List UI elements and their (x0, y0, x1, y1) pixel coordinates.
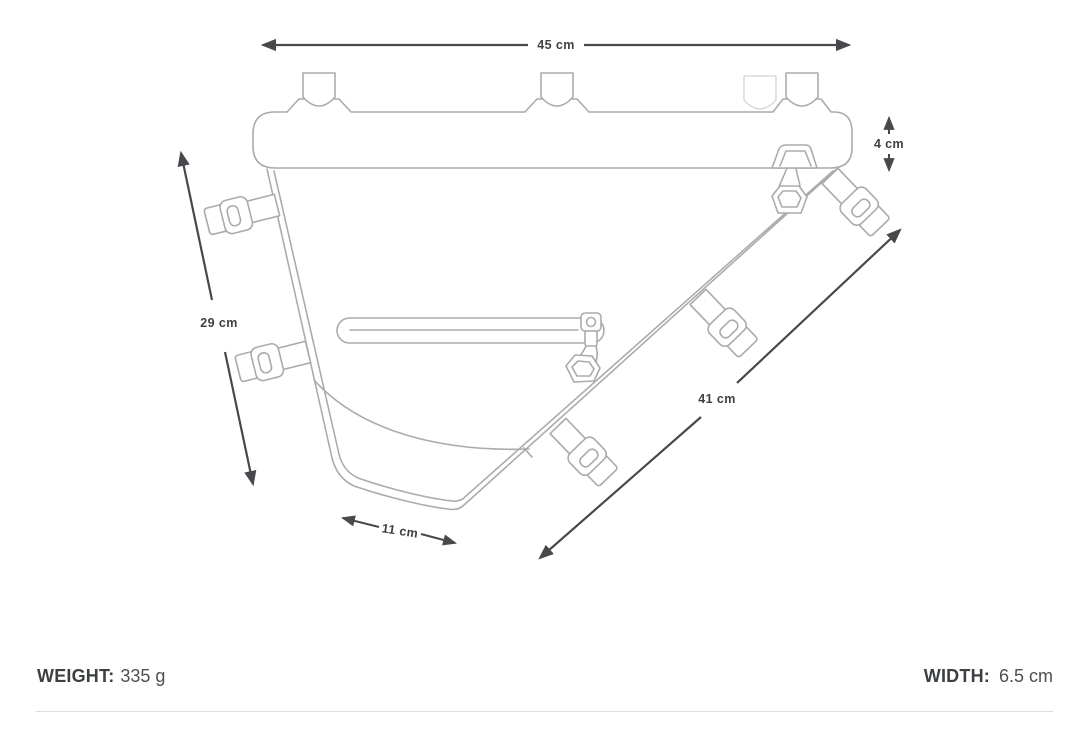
dim-bottom-arrow-right (421, 534, 455, 543)
diagonal-strap-buckle-bottom (546, 414, 620, 489)
zipper (337, 313, 604, 382)
weight-spec: WEIGHT:335 g (37, 666, 165, 687)
weight-value: 335 g (120, 666, 165, 686)
dim-left-label: 29 cm (200, 316, 237, 330)
velcro-loop-1 (303, 73, 335, 106)
velcro-loop-3 (786, 73, 818, 106)
width-value: 6.5 cm (999, 666, 1053, 686)
dim-tube-label: 4 cm (874, 137, 904, 151)
zipper-slider (581, 313, 601, 331)
fabric-crease (314, 380, 529, 449)
dim-diagonal-arrow-up (737, 230, 900, 383)
diagonal-strap-buckle-middle (686, 285, 760, 360)
frame-bag-diagram: 45 cm 29 cm 4 cm 41 cm 11 cm (0, 0, 1080, 730)
weight-label: WEIGHT: (37, 666, 114, 686)
width-label: WIDTH: (924, 666, 990, 686)
velcro-loop-ghost (744, 76, 776, 109)
left-strap-buckle-top (203, 189, 281, 239)
dim-diagonal-label: 41 cm (698, 392, 735, 406)
left-strap-buckle-bottom (234, 336, 312, 386)
dim-bottom-label: 11 cm (381, 521, 420, 541)
footer-divider (36, 711, 1053, 712)
velcro-loop-2 (541, 73, 573, 106)
width-spec: WIDTH:6.5 cm (924, 666, 1053, 687)
dim-bottom-arrow-left (343, 518, 379, 527)
zipper-pull (566, 355, 600, 382)
dim-top-label: 45 cm (537, 38, 574, 52)
rear-hanger (772, 145, 817, 213)
frame-bag-spec-page: 45 cm 29 cm 4 cm 41 cm 11 cm WEIGHT:335 … (0, 0, 1080, 730)
